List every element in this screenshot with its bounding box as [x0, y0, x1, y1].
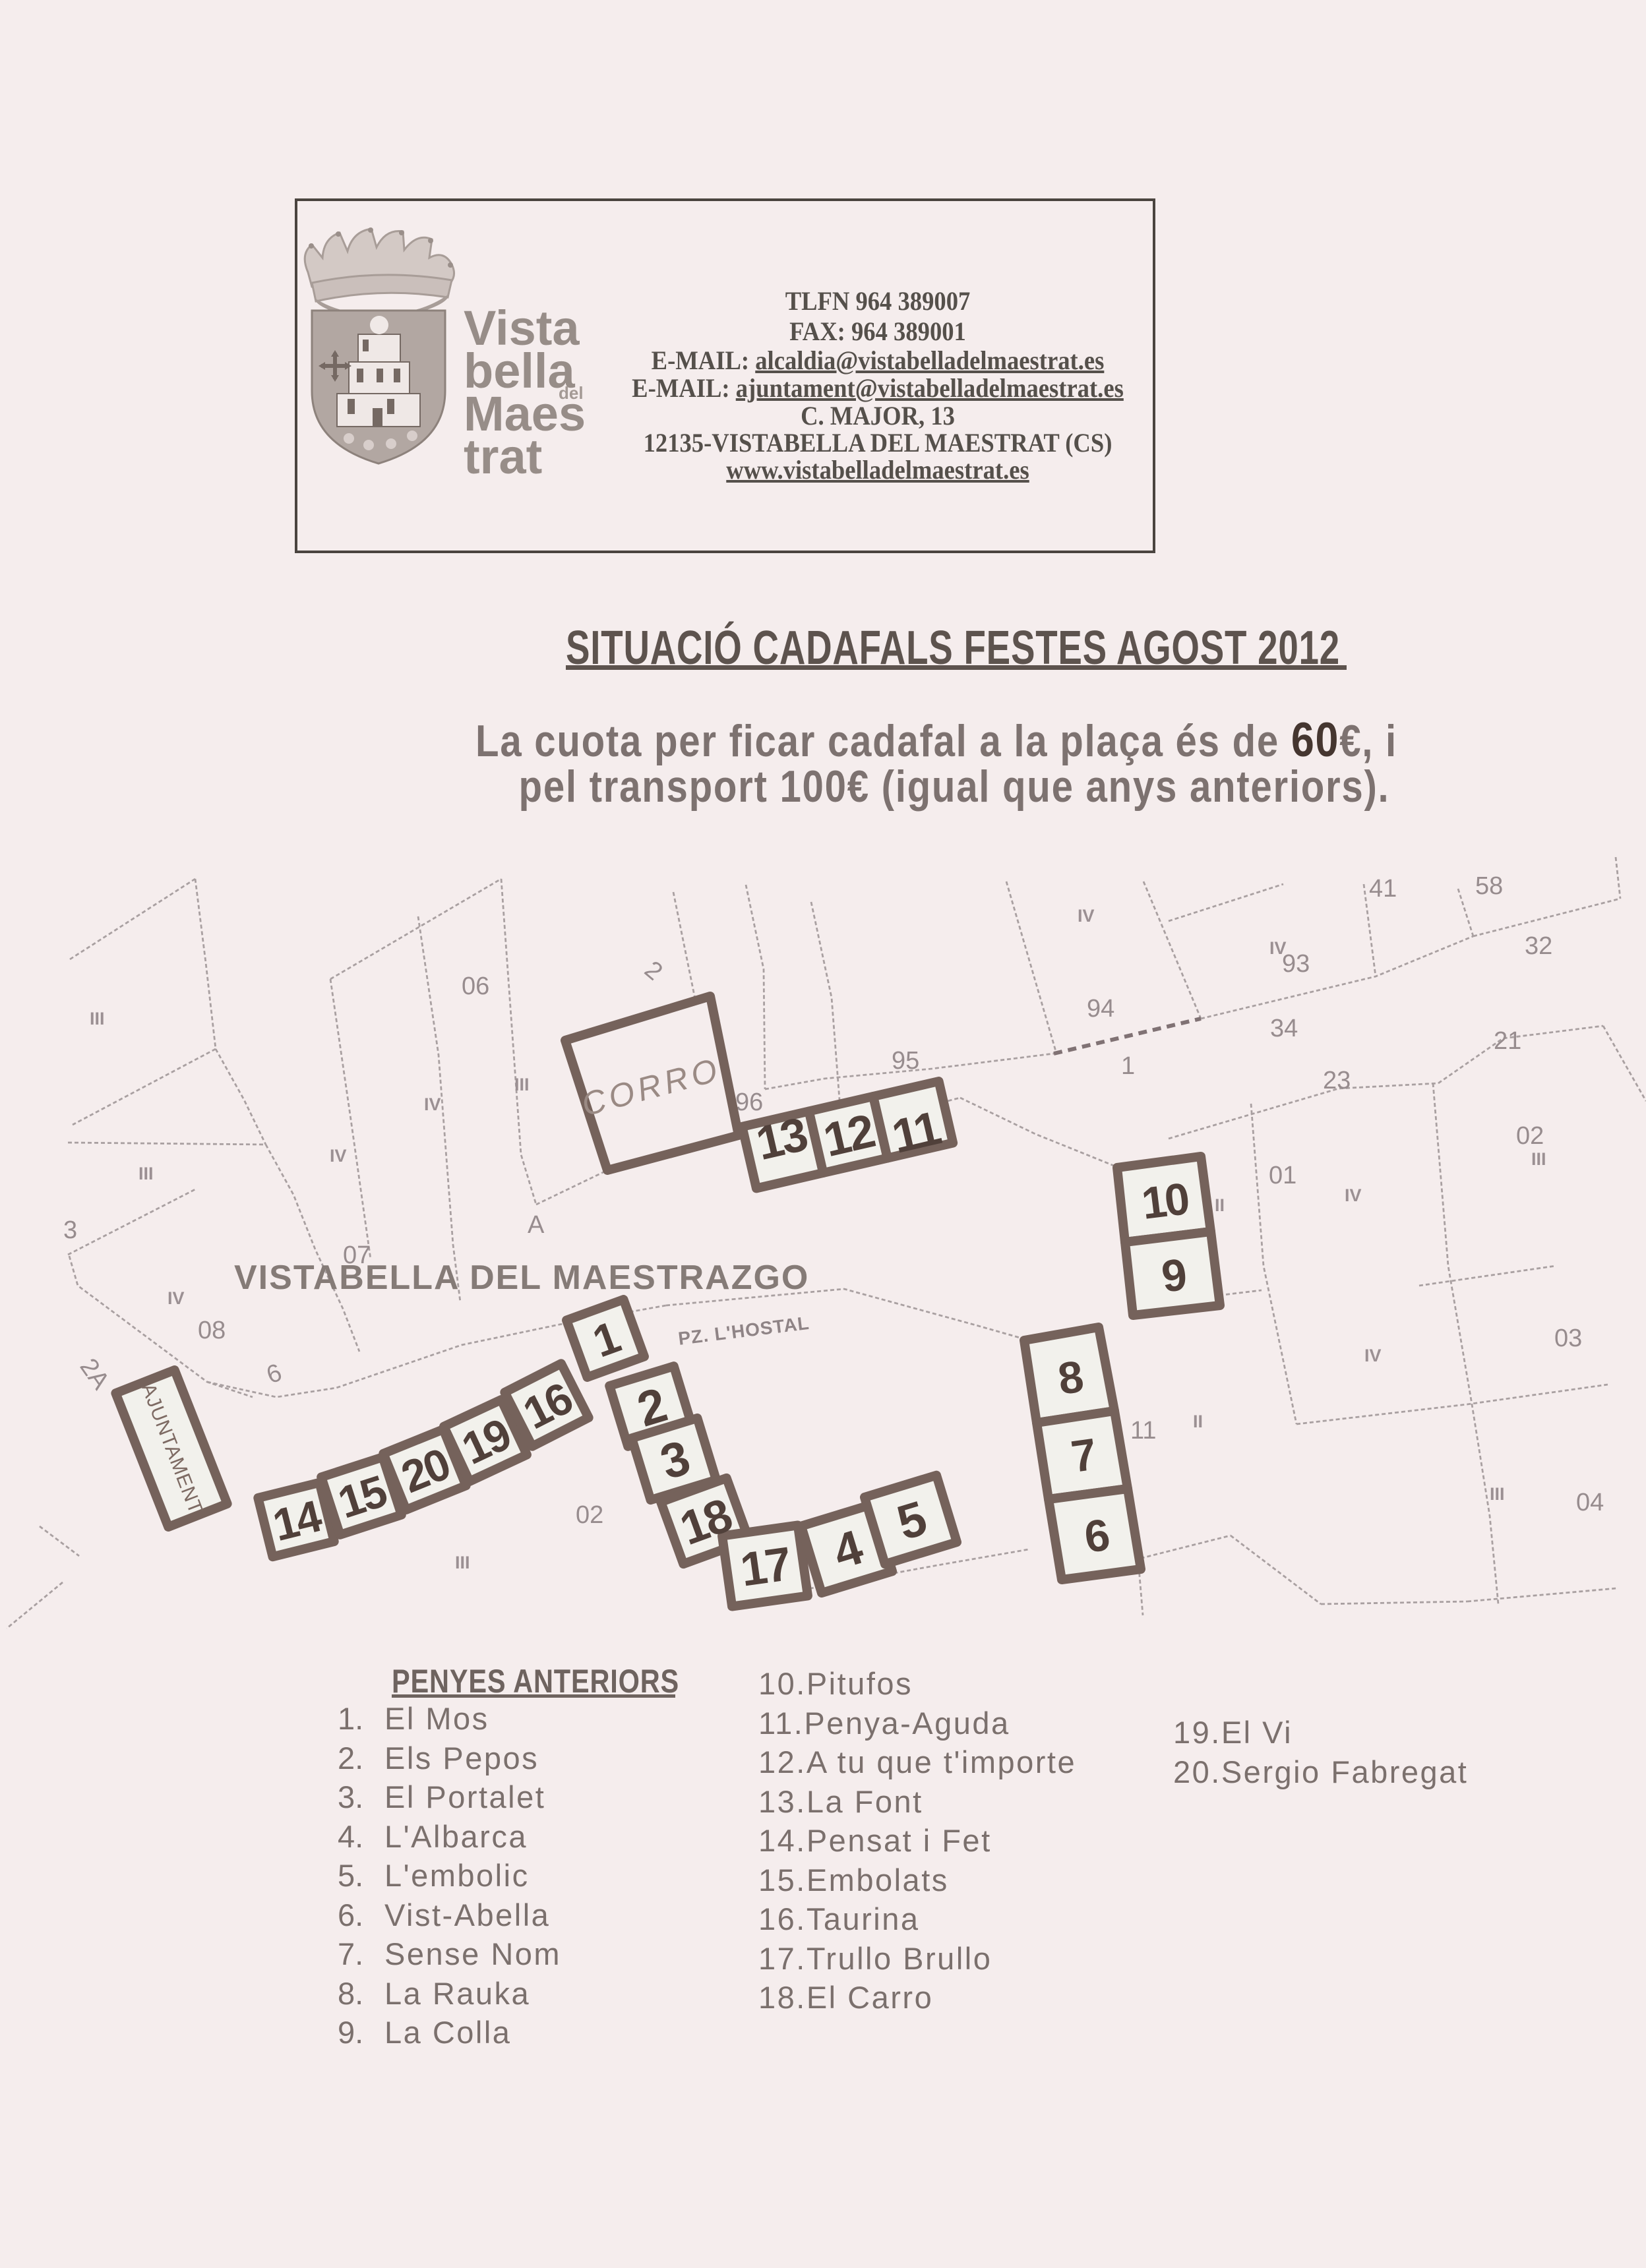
svg-text:04: 04: [1576, 1489, 1604, 1516]
svg-text:PZ. L'HOSTAL: PZ. L'HOSTAL: [677, 1313, 810, 1349]
svg-text:96: 96: [735, 1089, 763, 1116]
svg-text:III: III: [1531, 1149, 1546, 1169]
svg-text:34: 34: [1270, 1015, 1298, 1042]
svg-text:11: 11: [1130, 1417, 1156, 1445]
svg-text:2: 2: [639, 956, 667, 986]
svg-text:A: A: [528, 1211, 545, 1239]
svg-text:06: 06: [462, 972, 489, 1000]
svg-text:IV: IV: [424, 1094, 441, 1114]
svg-text:17: 17: [737, 1537, 793, 1597]
svg-text:III: III: [90, 1009, 105, 1029]
svg-text:CORRO: CORRO: [578, 1051, 725, 1123]
svg-text:02: 02: [1516, 1122, 1544, 1150]
svg-text:1: 1: [1121, 1052, 1135, 1080]
svg-text:IV: IV: [168, 1288, 185, 1308]
svg-text:II: II: [1215, 1195, 1225, 1215]
svg-text:III: III: [455, 1553, 470, 1572]
svg-text:IV: IV: [330, 1146, 347, 1166]
svg-text:32: 32: [1525, 932, 1552, 960]
svg-text:3: 3: [63, 1216, 77, 1244]
svg-text:6: 6: [263, 1359, 286, 1390]
svg-text:2A: 2A: [75, 1354, 115, 1395]
svg-text:94: 94: [1087, 995, 1114, 1023]
svg-text:II: II: [1193, 1412, 1203, 1431]
svg-text:10: 10: [1139, 1174, 1192, 1229]
svg-text:08: 08: [198, 1317, 226, 1344]
svg-text:III: III: [138, 1164, 154, 1183]
svg-text:IV: IV: [1078, 906, 1095, 926]
svg-text:IV: IV: [1345, 1185, 1362, 1205]
svg-text:95: 95: [892, 1047, 919, 1075]
svg-text:41: 41: [1369, 875, 1397, 903]
svg-text:IV: IV: [1364, 1346, 1382, 1365]
svg-text:VISTABELLA DEL MAESTRAZGO: VISTABELLA DEL MAESTRAZGO: [234, 1259, 809, 1297]
svg-text:01: 01: [1269, 1162, 1296, 1189]
svg-text:03: 03: [1554, 1325, 1582, 1352]
svg-text:02: 02: [576, 1501, 603, 1529]
svg-text:III: III: [1490, 1484, 1505, 1504]
svg-text:IV: IV: [1269, 938, 1287, 958]
svg-text:23: 23: [1323, 1067, 1351, 1094]
svg-text:58: 58: [1475, 872, 1503, 900]
svg-text:21: 21: [1494, 1027, 1521, 1055]
svg-text:III: III: [514, 1075, 530, 1094]
